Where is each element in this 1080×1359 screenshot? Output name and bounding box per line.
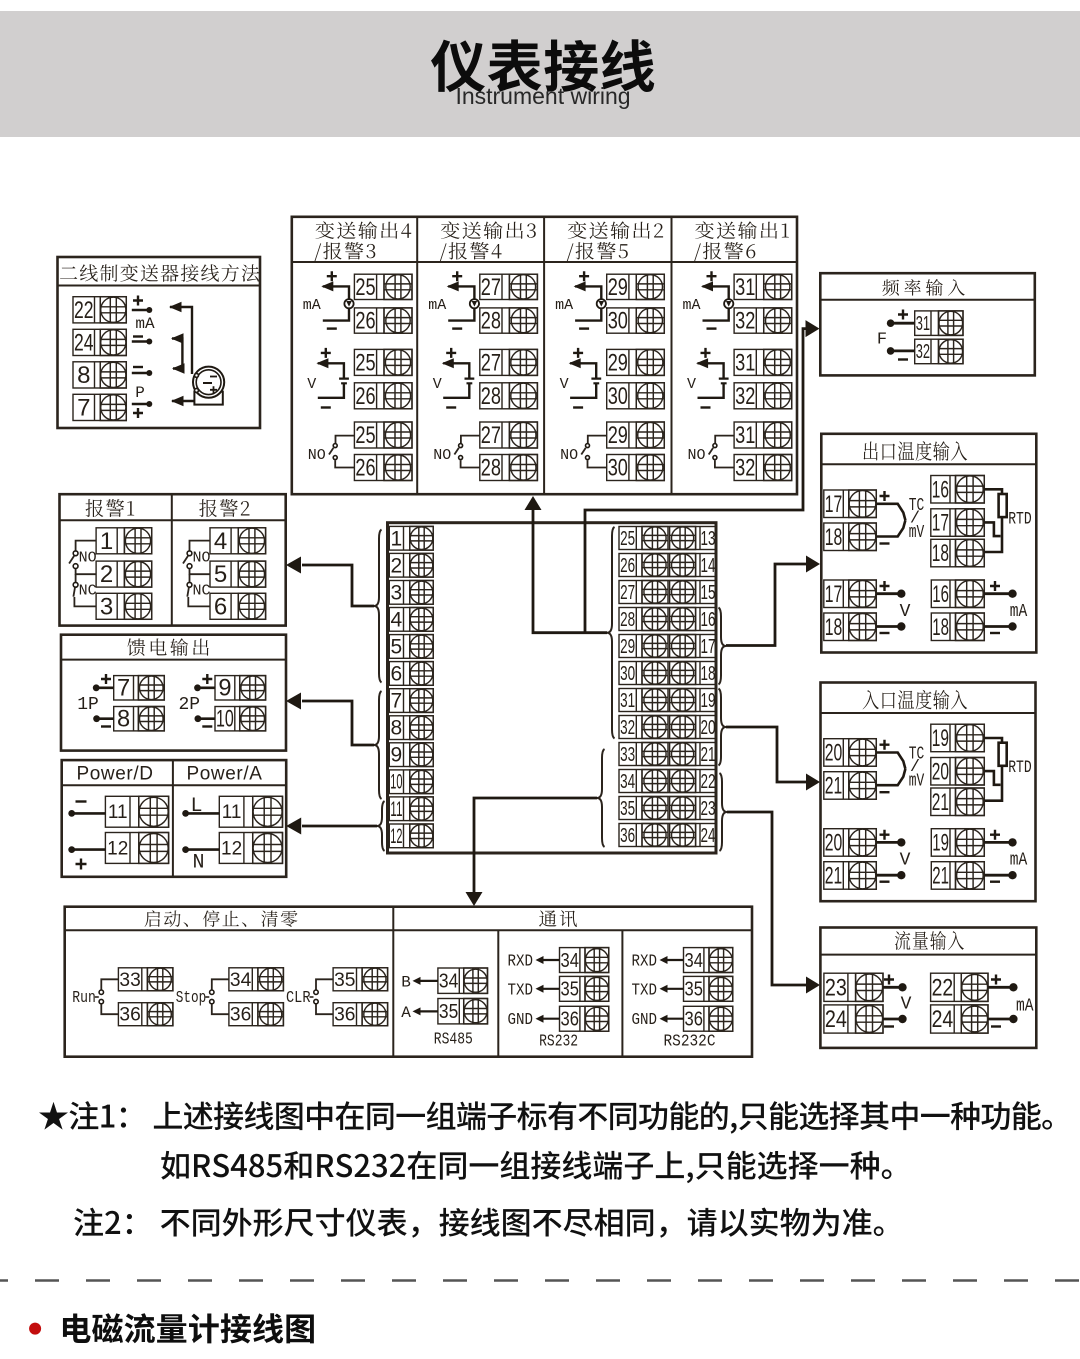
svg-text:23: 23 <box>825 974 847 1001</box>
svg-text:P: P <box>135 384 145 402</box>
svg-text:mA: mA <box>1010 602 1028 622</box>
svg-text:27: 27 <box>481 274 501 301</box>
svg-text:18: 18 <box>825 524 843 551</box>
svg-text:RTD: RTD <box>1008 758 1031 778</box>
svg-text:29: 29 <box>608 274 628 301</box>
svg-text:2: 2 <box>100 561 113 588</box>
svg-text:9: 9 <box>218 676 231 702</box>
svg-text:31: 31 <box>735 274 755 301</box>
svg-text:25: 25 <box>620 528 635 550</box>
svg-text:2P: 2P <box>178 695 200 715</box>
svg-text:23: 23 <box>701 798 716 820</box>
svg-text:RS232C: RS232C <box>664 1033 716 1052</box>
svg-text:24: 24 <box>74 329 94 356</box>
svg-text:7: 7 <box>117 676 130 702</box>
svg-text:27: 27 <box>620 582 635 604</box>
svg-text:21: 21 <box>825 863 843 890</box>
svg-text:NO: NO <box>192 549 210 566</box>
svg-text:24: 24 <box>701 825 716 847</box>
svg-text:31: 31 <box>620 690 635 712</box>
svg-text:mV: mV <box>909 523 925 543</box>
svg-text:V: V <box>307 376 316 393</box>
svg-text:V: V <box>900 851 911 871</box>
svg-text:NO: NO <box>433 447 451 464</box>
svg-text:mA: mA <box>135 315 155 333</box>
svg-text:36: 36 <box>561 1009 579 1031</box>
svg-text:22: 22 <box>932 974 954 1001</box>
svg-text:19: 19 <box>701 690 716 712</box>
svg-text:31: 31 <box>735 422 755 449</box>
svg-text:8: 8 <box>77 362 90 389</box>
svg-text:35: 35 <box>685 979 703 1001</box>
svg-text:18: 18 <box>701 663 716 685</box>
svg-text:21: 21 <box>932 789 949 816</box>
svg-text:9: 9 <box>391 744 403 767</box>
svg-text:29: 29 <box>608 422 628 449</box>
svg-text:26: 26 <box>620 555 635 577</box>
svg-text:8: 8 <box>391 717 403 740</box>
svg-text:19: 19 <box>932 830 949 857</box>
svg-text:36: 36 <box>685 1009 703 1031</box>
svg-text:30: 30 <box>608 308 628 335</box>
svg-text:30: 30 <box>620 663 635 685</box>
svg-text:17: 17 <box>825 491 843 518</box>
svg-text:RS232: RS232 <box>539 1033 578 1052</box>
svg-text:2: 2 <box>391 554 403 577</box>
svg-text:mA: mA <box>1010 851 1028 871</box>
svg-text:mA: mA <box>1016 997 1034 1017</box>
svg-text:14: 14 <box>701 555 716 577</box>
svg-text:32: 32 <box>620 717 635 739</box>
svg-text:21: 21 <box>701 744 716 766</box>
svg-text:36: 36 <box>334 1004 355 1026</box>
svg-text:16: 16 <box>932 581 949 608</box>
svg-text:36: 36 <box>119 1004 140 1026</box>
svg-text:RXD: RXD <box>508 953 534 972</box>
svg-text:20: 20 <box>701 717 716 739</box>
svg-text:18: 18 <box>932 540 949 567</box>
svg-text:25: 25 <box>355 349 375 376</box>
svg-text:mA: mA <box>555 297 573 314</box>
svg-text:V: V <box>560 376 569 393</box>
svg-text:3: 3 <box>391 581 403 604</box>
svg-text:12: 12 <box>107 838 128 859</box>
svg-text:24: 24 <box>825 1006 847 1033</box>
svg-text:32: 32 <box>916 341 930 363</box>
svg-text:13: 13 <box>701 528 716 550</box>
svg-text:21: 21 <box>825 773 843 800</box>
svg-text:GND: GND <box>632 1011 658 1030</box>
svg-text:16: 16 <box>701 609 716 631</box>
svg-text:7: 7 <box>391 690 403 713</box>
svg-text:V: V <box>901 995 912 1015</box>
svg-text:V: V <box>900 602 911 622</box>
svg-text:16: 16 <box>932 476 949 503</box>
svg-text:Instrument wiring: Instrument wiring <box>455 83 630 109</box>
svg-text:35: 35 <box>620 798 635 820</box>
svg-text:35: 35 <box>334 969 356 991</box>
svg-text:25: 25 <box>355 274 375 301</box>
svg-text:30: 30 <box>608 455 628 482</box>
svg-text:11: 11 <box>108 802 128 823</box>
svg-text:28: 28 <box>620 609 635 631</box>
svg-text:20: 20 <box>932 758 949 785</box>
svg-text:32: 32 <box>735 455 755 482</box>
svg-text:7: 7 <box>77 394 90 421</box>
svg-text:26: 26 <box>355 383 375 410</box>
svg-text:F: F <box>877 331 887 350</box>
svg-text:Power/A: Power/A <box>186 763 262 784</box>
svg-text:11: 11 <box>390 798 402 821</box>
svg-text:NC: NC <box>192 583 210 600</box>
svg-text:4: 4 <box>391 608 403 631</box>
svg-text:27: 27 <box>481 349 501 376</box>
svg-text:Power/D: Power/D <box>76 763 153 784</box>
svg-text:36: 36 <box>620 825 635 847</box>
svg-text:27: 27 <box>481 422 501 449</box>
svg-text:17: 17 <box>825 581 843 608</box>
svg-text:GND: GND <box>508 1011 534 1030</box>
svg-text:34: 34 <box>685 950 703 972</box>
svg-text:32: 32 <box>735 383 755 410</box>
svg-text:5: 5 <box>214 561 227 588</box>
svg-text:RXD: RXD <box>632 953 658 972</box>
svg-text:17: 17 <box>932 510 949 537</box>
svg-text:22: 22 <box>701 771 716 793</box>
svg-text:28: 28 <box>481 383 501 410</box>
svg-text:V: V <box>433 376 442 393</box>
svg-text:33: 33 <box>620 744 635 766</box>
svg-text:RS485: RS485 <box>434 1031 473 1050</box>
svg-text:11: 11 <box>222 802 242 823</box>
svg-text:31: 31 <box>916 313 930 335</box>
svg-text:34: 34 <box>230 969 252 991</box>
svg-text:34: 34 <box>620 771 635 793</box>
svg-text:22: 22 <box>74 297 94 324</box>
svg-text:24: 24 <box>932 1006 954 1033</box>
svg-text:18: 18 <box>825 614 843 641</box>
svg-text:V: V <box>687 376 696 393</box>
svg-text:TXD: TXD <box>632 981 658 1000</box>
svg-text:NO: NO <box>687 447 705 464</box>
svg-text:33: 33 <box>119 969 140 991</box>
svg-text:5: 5 <box>391 636 403 659</box>
svg-text:NO: NO <box>560 447 578 464</box>
svg-text:35: 35 <box>439 1001 458 1023</box>
svg-text:31: 31 <box>735 349 755 376</box>
svg-text:1: 1 <box>391 527 403 550</box>
svg-text:B: B <box>401 974 411 992</box>
svg-text:6: 6 <box>214 593 227 620</box>
svg-text:10: 10 <box>216 707 234 733</box>
svg-text:TXD: TXD <box>508 981 534 1000</box>
svg-text:20: 20 <box>825 830 843 857</box>
svg-text:26: 26 <box>355 308 375 335</box>
svg-text:21: 21 <box>932 863 949 890</box>
svg-text:36: 36 <box>230 1004 251 1026</box>
svg-text:28: 28 <box>481 455 501 482</box>
svg-text:12: 12 <box>390 825 402 848</box>
svg-text:6: 6 <box>391 663 403 686</box>
svg-text:NO: NO <box>79 549 97 566</box>
svg-text:CLR: CLR <box>286 989 311 1008</box>
svg-text:8: 8 <box>117 707 130 733</box>
svg-text:29: 29 <box>620 636 635 658</box>
svg-text:Run: Run <box>72 989 96 1008</box>
svg-text:3: 3 <box>100 593 113 620</box>
svg-text:34: 34 <box>439 970 458 992</box>
svg-text:Stop: Stop <box>176 989 207 1008</box>
svg-text:mA: mA <box>303 297 321 314</box>
svg-text:20: 20 <box>825 740 843 767</box>
svg-text:N: N <box>192 852 204 875</box>
svg-text:10: 10 <box>390 771 402 794</box>
svg-text:1P: 1P <box>77 695 99 715</box>
svg-text:12: 12 <box>221 838 242 859</box>
svg-text:RTD: RTD <box>1008 510 1031 530</box>
svg-text:35: 35 <box>561 979 579 1001</box>
svg-text:NO: NO <box>308 447 326 464</box>
svg-text:mV: mV <box>909 772 925 792</box>
svg-text:4: 4 <box>214 528 227 555</box>
svg-text:26: 26 <box>355 455 375 482</box>
svg-text:30: 30 <box>608 383 628 410</box>
svg-text:L: L <box>190 795 202 818</box>
svg-text:mA: mA <box>428 297 446 314</box>
svg-text:32: 32 <box>735 308 755 335</box>
svg-text:A: A <box>401 1004 411 1022</box>
svg-text:34: 34 <box>561 950 579 972</box>
svg-text:NC: NC <box>79 583 97 600</box>
svg-text:mA: mA <box>682 297 700 314</box>
svg-text:18: 18 <box>932 614 949 641</box>
svg-text:19: 19 <box>932 725 949 752</box>
svg-text:15: 15 <box>701 582 716 604</box>
svg-text:29: 29 <box>608 349 628 376</box>
svg-text:1: 1 <box>100 528 113 555</box>
svg-text:17: 17 <box>701 636 716 658</box>
svg-text:28: 28 <box>481 308 501 335</box>
svg-text:25: 25 <box>355 422 375 449</box>
